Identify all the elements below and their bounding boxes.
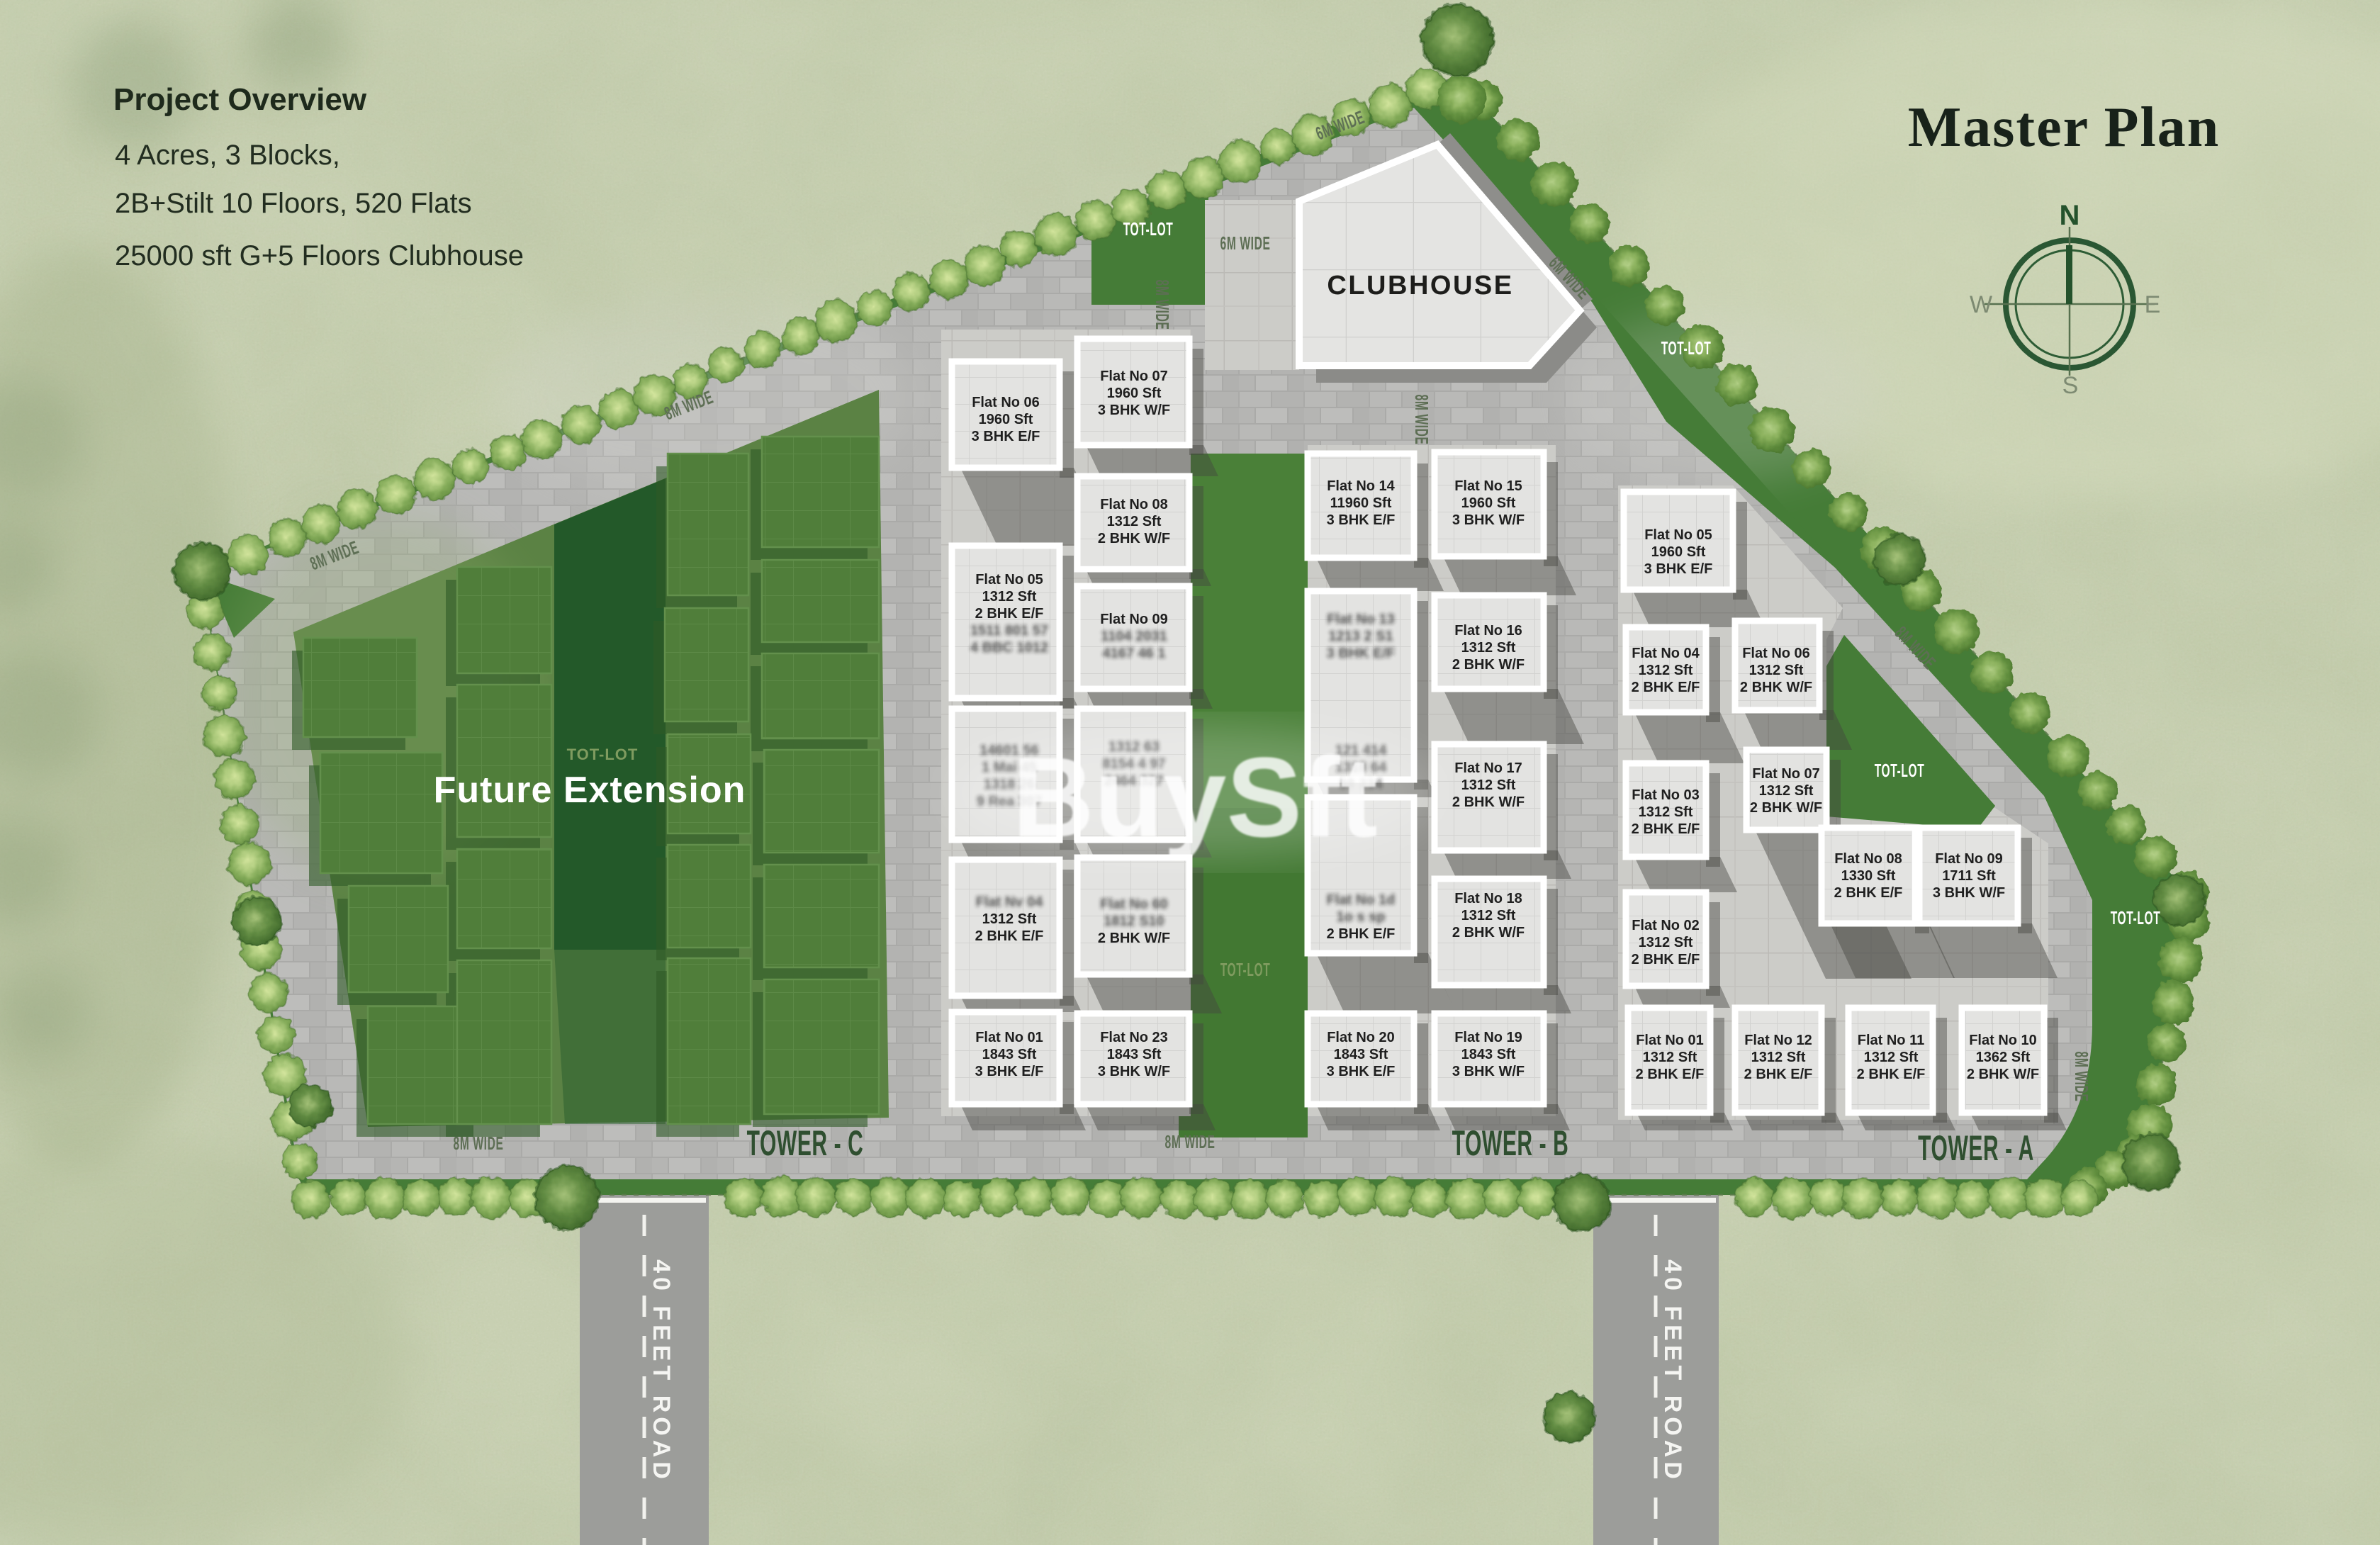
- svg-text:1843 Sft: 1843 Sft: [982, 1047, 1037, 1062]
- svg-text:Flat No 10: Flat No 10: [1969, 1033, 2037, 1048]
- svg-text:2 BHK E/F: 2 BHK E/F: [1632, 821, 1700, 837]
- svg-text:8M WIDE: 8M WIDE: [1152, 280, 1172, 330]
- svg-text:40 FEET ROAD: 40 FEET ROAD: [1659, 1259, 1686, 1483]
- svg-text:2 BHK W/F: 2 BHK W/F: [1098, 931, 1170, 946]
- svg-text:2 BHK E/F: 2 BHK E/F: [1857, 1067, 1926, 1082]
- svg-text:Flat No 05: Flat No 05: [975, 572, 1043, 588]
- svg-text:S: S: [2062, 372, 2079, 399]
- svg-text:4167 46 1: 4167 46 1: [1103, 646, 1166, 661]
- svg-text:2 BHK E/F: 2 BHK E/F: [1327, 926, 1396, 942]
- svg-text:1511 801 57: 1511 801 57: [970, 623, 1048, 639]
- svg-text:2 BHK E/F: 2 BHK E/F: [1744, 1067, 1813, 1082]
- svg-text:1o s sp: 1o s sp: [1337, 909, 1386, 925]
- svg-text:8M WIDE: 8M WIDE: [454, 1133, 504, 1154]
- svg-text:W: W: [1970, 291, 1992, 318]
- svg-text:1711 Sft: 1711 Sft: [1942, 868, 1996, 884]
- svg-text:Flat No 14: Flat No 14: [1327, 478, 1395, 494]
- svg-text:CLUBHOUSE: CLUBHOUSE: [1327, 271, 1513, 300]
- svg-text:2 BHK E/F: 2 BHK E/F: [975, 928, 1044, 944]
- svg-text:Flat No 13: Flat No 13: [1327, 612, 1395, 627]
- svg-text:1960 Sft: 1960 Sft: [1461, 495, 1516, 511]
- svg-text:4 Acres, 3 Blocks,: 4 Acres, 3 Blocks,: [115, 140, 340, 171]
- svg-text:1312 Sft: 1312 Sft: [1107, 514, 1162, 529]
- svg-text:1312 Sft: 1312 Sft: [982, 589, 1037, 605]
- svg-text:Flat No 06: Flat No 06: [1742, 646, 1810, 661]
- svg-text:1812 S10: 1812 S10: [1104, 914, 1164, 929]
- svg-text:Flat No 16: Flat No 16: [1454, 623, 1522, 639]
- svg-text:8M WIDE: 8M WIDE: [2071, 1052, 2092, 1102]
- svg-text:Flat No 07: Flat No 07: [1100, 369, 1168, 384]
- svg-text:1843 Sft: 1843 Sft: [1461, 1047, 1516, 1062]
- svg-text:BuySft: BuySft: [1012, 734, 1378, 860]
- svg-text:2 BHK W/F: 2 BHK W/F: [1452, 657, 1525, 673]
- svg-text:2 BHK W/F: 2 BHK W/F: [1452, 794, 1525, 810]
- svg-text:1312 Sft: 1312 Sft: [982, 911, 1037, 927]
- svg-text:1312 Sft: 1312 Sft: [1461, 640, 1516, 656]
- svg-text:4 BBC 1012: 4 BBC 1012: [970, 640, 1048, 656]
- svg-text:TOWER - A: TOWER - A: [1918, 1128, 2034, 1168]
- svg-text:1312 Sft: 1312 Sft: [1864, 1050, 1919, 1065]
- svg-text:Flat No 11: Flat No 11: [1858, 1033, 1924, 1048]
- svg-text:1312 Sft: 1312 Sft: [1759, 783, 1814, 799]
- svg-text:3 BHK W/F: 3 BHK W/F: [1098, 403, 1170, 418]
- svg-text:2B+Stilt 10 Floors, 520 Flats: 2B+Stilt 10 Floors, 520 Flats: [115, 188, 472, 219]
- svg-text:3 BHK E/F: 3 BHK E/F: [1644, 561, 1713, 577]
- svg-text:8M WIDE: 8M WIDE: [1165, 1132, 1216, 1152]
- svg-text:40 FEET ROAD: 40 FEET ROAD: [648, 1259, 675, 1483]
- svg-text:TOT-LOT: TOT-LOT: [567, 746, 639, 763]
- svg-text:3 BHK W/F: 3 BHK W/F: [1933, 885, 2005, 901]
- svg-text:2 BHK E/F: 2 BHK E/F: [1632, 680, 1700, 695]
- svg-text:2 BHK W/F: 2 BHK W/F: [1452, 925, 1525, 940]
- svg-text:3 BHK E/F: 3 BHK E/F: [1327, 1064, 1396, 1079]
- svg-text:Flat No 23: Flat No 23: [1100, 1030, 1168, 1045]
- svg-text:E: E: [2145, 291, 2161, 318]
- svg-text:2 BHK E/F: 2 BHK E/F: [975, 606, 1044, 622]
- svg-text:1362 Sft: 1362 Sft: [1976, 1050, 2031, 1065]
- svg-text:TOT-LOT: TOT-LOT: [2111, 908, 2161, 928]
- svg-text:Flat No 04: Flat No 04: [1632, 646, 1700, 661]
- svg-text:2 BHK E/F: 2 BHK E/F: [1834, 885, 1903, 901]
- svg-text:TOWER - C: TOWER - C: [747, 1123, 864, 1163]
- svg-text:3 BHK W/F: 3 BHK W/F: [1098, 1064, 1170, 1079]
- svg-text:Flat No 20: Flat No 20: [1327, 1030, 1395, 1045]
- svg-text:1312 Sft: 1312 Sft: [1461, 908, 1516, 923]
- svg-text:Flat No 06: Flat No 06: [972, 395, 1040, 410]
- svg-text:TOWER - B: TOWER - B: [1452, 1123, 1569, 1163]
- svg-text:TOT-LOT: TOT-LOT: [1123, 219, 1174, 240]
- svg-text:Flat No 08: Flat No 08: [1100, 497, 1168, 512]
- svg-text:Flat No 02: Flat No 02: [1632, 918, 1700, 933]
- svg-text:TOT-LOT: TOT-LOT: [1661, 338, 1712, 359]
- svg-text:2 BHK W/F: 2 BHK W/F: [1750, 800, 1822, 816]
- svg-text:1312 Sft: 1312 Sft: [1639, 804, 1693, 820]
- svg-text:1312 Sft: 1312 Sft: [1639, 935, 1693, 950]
- svg-text:3 BHK E/F: 3 BHK E/F: [975, 1064, 1044, 1079]
- svg-text:6M WIDE: 6M WIDE: [1220, 233, 1271, 254]
- svg-text:Flat No 15: Flat No 15: [1454, 478, 1522, 494]
- svg-text:25000 sft G+5 Floors Clubhouse: 25000 sft G+5 Floors Clubhouse: [115, 240, 524, 271]
- svg-text:Flat No 03: Flat No 03: [1632, 787, 1700, 803]
- svg-text:Flat No 08: Flat No 08: [1834, 851, 1902, 867]
- svg-text:1960 Sft: 1960 Sft: [1651, 544, 1706, 560]
- svg-text:1312 Sft: 1312 Sft: [1751, 1050, 1806, 1065]
- svg-text:Future Extension: Future Extension: [434, 770, 746, 811]
- svg-text:Master Plan: Master Plan: [1908, 96, 2220, 159]
- svg-text:1312 Sft: 1312 Sft: [1749, 663, 1804, 678]
- svg-text:TOT-LOT: TOT-LOT: [1220, 960, 1271, 980]
- svg-text:1960 Sft: 1960 Sft: [979, 412, 1033, 427]
- svg-text:Flat No 05: Flat No 05: [1644, 527, 1712, 543]
- svg-text:3 BHK E/F: 3 BHK E/F: [1327, 512, 1396, 528]
- svg-text:3 BHK E/F: 3 BHK E/F: [1327, 646, 1396, 661]
- svg-text:1312 Sft: 1312 Sft: [1639, 663, 1693, 678]
- svg-text:3 BHK W/F: 3 BHK W/F: [1452, 512, 1525, 528]
- svg-text:2 BHK E/F: 2 BHK E/F: [1636, 1067, 1705, 1082]
- svg-text:1312 Sft: 1312 Sft: [1643, 1050, 1697, 1065]
- svg-text:3 BHK W/F: 3 BHK W/F: [1452, 1064, 1525, 1079]
- svg-text:11960 Sft: 11960 Sft: [1330, 495, 1392, 511]
- svg-text:Flat No 19: Flat No 19: [1454, 1030, 1522, 1045]
- svg-text:Flat No 07: Flat No 07: [1752, 766, 1820, 782]
- svg-text:1843 Sft: 1843 Sft: [1334, 1047, 1388, 1062]
- svg-text:Project Overview: Project Overview: [113, 82, 367, 117]
- svg-text:2 BHK W/F: 2 BHK W/F: [1967, 1067, 2039, 1082]
- svg-text:1843 Sft: 1843 Sft: [1107, 1047, 1162, 1062]
- svg-text:8M WIDE: 8M WIDE: [1411, 395, 1432, 445]
- svg-text:Flat No 01: Flat No 01: [975, 1030, 1043, 1045]
- svg-text:Flat No 17: Flat No 17: [1454, 760, 1522, 776]
- svg-text:1960 Sft: 1960 Sft: [1107, 386, 1162, 401]
- svg-text:1330 Sft: 1330 Sft: [1841, 868, 1896, 884]
- svg-text:TOT-LOT: TOT-LOT: [1875, 760, 1925, 781]
- svg-text:2 BHK W/F: 2 BHK W/F: [1740, 680, 1812, 695]
- svg-text:1104 2031: 1104 2031: [1101, 629, 1167, 644]
- svg-text:Flat No 18: Flat No 18: [1454, 891, 1522, 906]
- svg-text:Flat No 09: Flat No 09: [1100, 612, 1168, 627]
- svg-text:3 BHK E/F: 3 BHK E/F: [972, 429, 1040, 444]
- svg-text:2 BHK E/F: 2 BHK E/F: [1632, 952, 1700, 967]
- svg-text:Flat No 01: Flat No 01: [1636, 1033, 1704, 1048]
- svg-text:Flat No 1d: Flat No 1d: [1327, 892, 1396, 908]
- svg-text:Flat Nv 04: Flat Nv 04: [976, 894, 1043, 910]
- svg-text:Flat No 60: Flat No 60: [1100, 897, 1168, 912]
- svg-text:1213 2 S1: 1213 2 S1: [1328, 629, 1393, 644]
- svg-text:Flat No 09: Flat No 09: [1935, 851, 2003, 867]
- svg-text:1312 Sft: 1312 Sft: [1461, 777, 1516, 793]
- svg-text:N: N: [2060, 200, 2080, 231]
- svg-text:2 BHK W/F: 2 BHK W/F: [1098, 531, 1170, 546]
- svg-text:Flat No 12: Flat No 12: [1744, 1033, 1812, 1048]
